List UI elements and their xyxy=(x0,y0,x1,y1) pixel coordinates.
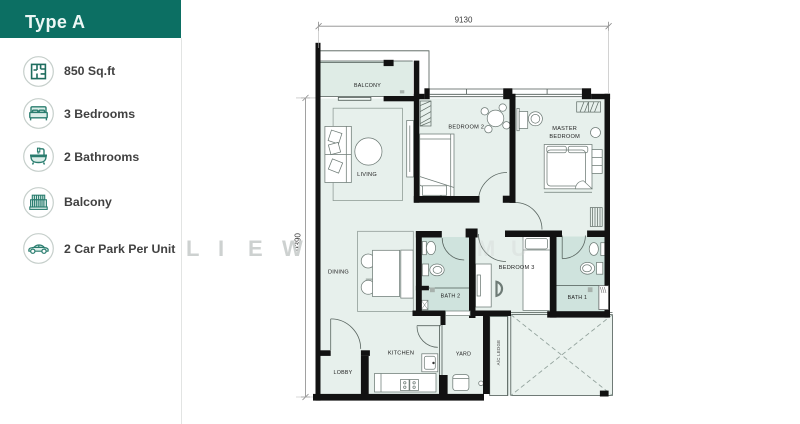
svg-text:DINING: DINING xyxy=(328,270,349,276)
svg-text:A/C LEDGE: A/C LEDGE xyxy=(496,340,501,366)
svg-text:LOBBY: LOBBY xyxy=(334,370,353,376)
svg-text:BEDROOM 3: BEDROOM 3 xyxy=(499,265,535,271)
svg-text:LIVING: LIVING xyxy=(357,172,377,178)
svg-text:KITCHEN: KITCHEN xyxy=(388,350,414,356)
svg-text:MASTER: MASTER xyxy=(552,126,577,132)
svg-text:BEDROOM: BEDROOM xyxy=(549,134,580,140)
svg-text:9130: 9130 xyxy=(455,15,473,24)
svg-text:BEDROOM 2: BEDROOM 2 xyxy=(448,124,484,130)
svg-text:BATH 1: BATH 1 xyxy=(568,295,588,301)
svg-text:BATH 2: BATH 2 xyxy=(441,294,461,300)
svg-text:BALCONY: BALCONY xyxy=(354,83,381,89)
svg-text:YARD: YARD xyxy=(456,351,471,357)
